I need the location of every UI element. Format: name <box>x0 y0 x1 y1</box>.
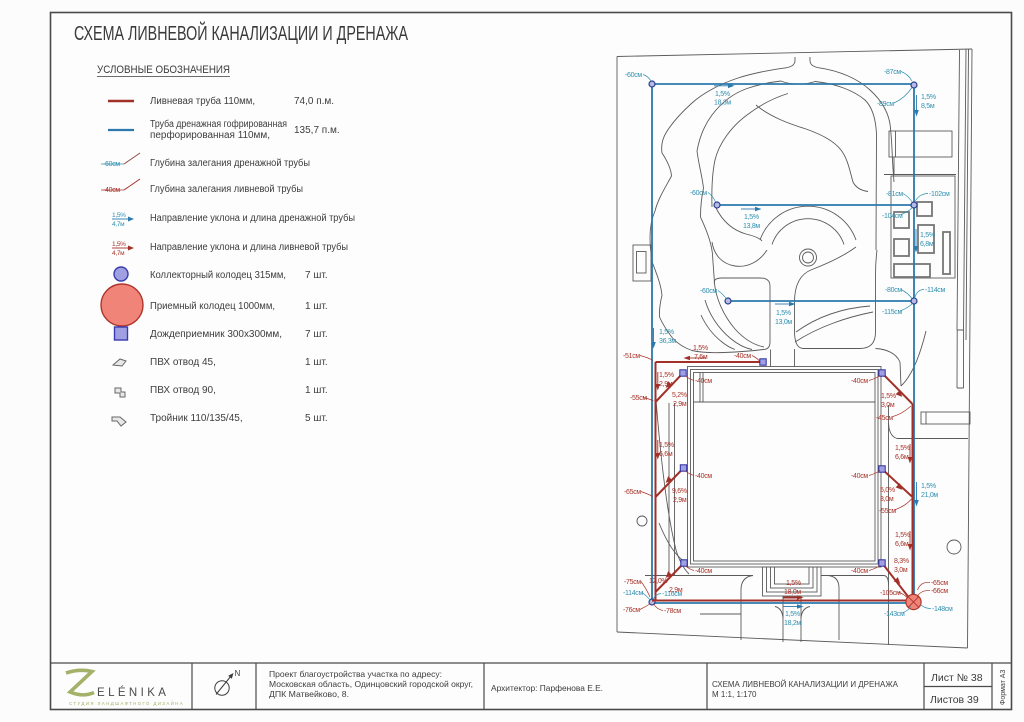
svg-text:2,9м: 2,9м <box>673 497 687 504</box>
svg-text:1,5%: 1,5% <box>659 442 674 449</box>
svg-text:-60см: -60см <box>103 161 120 168</box>
svg-text:1 шт.: 1 шт. <box>305 301 328 312</box>
svg-text:-80см: -80см <box>885 287 902 294</box>
svg-text:Лист № 38: Лист № 38 <box>931 672 983 684</box>
svg-text:13,0м: 13,0м <box>775 319 792 326</box>
svg-text:6,6м: 6,6м <box>895 541 909 548</box>
svg-text:-66см: -66см <box>931 588 948 595</box>
svg-text:перфорированная 110мм,: перфорированная 110мм, <box>150 129 270 141</box>
svg-text:-76см: -76см <box>623 607 640 614</box>
svg-text:-60см: -60см <box>690 190 707 197</box>
svg-text:Проект благоустройства участка: Проект благоустройства участка по адресу… <box>269 669 442 679</box>
svg-text:ДПК Матвейково, 8.: ДПК Матвейково, 8. <box>269 689 349 699</box>
svg-text:1,5%: 1,5% <box>921 94 936 101</box>
svg-text:СХЕМА ЛИВНЕВОЙ КАНАЛИЗАЦИИ И Д: СХЕМА ЛИВНЕВОЙ КАНАЛИЗАЦИИ И ДРЕНАЖА <box>74 21 408 45</box>
svg-text:1,5%: 1,5% <box>659 372 674 379</box>
svg-text:12,0%: 12,0% <box>649 578 667 585</box>
svg-text:СХЕМА ЛИВНЕВОЙ КАНАЛИЗАЦИИ И Д: СХЕМА ЛИВНЕВОЙ КАНАЛИЗАЦИИ И ДРЕНАЖА <box>712 680 899 689</box>
svg-text:УСЛОВНЫЕ ОБОЗНАЧЕНИЯ: УСЛОВНЫЕ ОБОЗНАЧЕНИЯ <box>97 64 230 76</box>
svg-text:6,6м: 6,6м <box>659 451 673 458</box>
svg-text:1,5%: 1,5% <box>785 611 800 618</box>
svg-text:-102см: -102см <box>929 191 950 198</box>
svg-text:1,5%: 1,5% <box>895 445 910 452</box>
svg-text:Глубина залегания ливневой тру: Глубина залегания ливневой трубы <box>150 183 303 195</box>
svg-text:1,5%: 1,5% <box>715 91 730 98</box>
svg-text:Коллекторный колодец 315мм,: Коллекторный колодец 315мм, <box>150 270 286 281</box>
svg-text:2,9м: 2,9м <box>669 587 683 594</box>
svg-text:-65см: -65см <box>624 489 641 496</box>
svg-text:1 шт.: 1 шт. <box>305 357 328 368</box>
svg-text:18,3м: 18,3м <box>714 100 731 107</box>
svg-text:Направление уклона и длина лив: Направление уклона и длина ливневой труб… <box>150 241 348 253</box>
svg-text:-148см: -148см <box>932 606 953 613</box>
svg-text:2,9м: 2,9м <box>659 381 673 388</box>
svg-text:5 шт.: 5 шт. <box>305 413 328 424</box>
svg-text:6,6м: 6,6м <box>895 454 909 461</box>
svg-text:Глубина залегания дренажной тр: Глубина залегания дренажной трубы <box>150 157 310 169</box>
svg-text:3,0м: 3,0м <box>894 567 908 574</box>
svg-text:N: N <box>235 669 241 678</box>
svg-text:-75см: -75см <box>624 579 641 586</box>
svg-text:8,3%: 8,3% <box>894 558 909 565</box>
svg-text:1,5%: 1,5% <box>895 532 910 539</box>
svg-text:5,0%: 5,0% <box>880 487 895 494</box>
svg-text:-55см: -55см <box>879 508 896 515</box>
svg-text:Дождеприемник 300х300мм,: Дождеприемник 300х300мм, <box>150 329 282 340</box>
svg-text:4,7м: 4,7м <box>112 250 125 257</box>
svg-text:-40см: -40см <box>851 568 868 575</box>
svg-text:18,0м: 18,0м <box>784 589 801 596</box>
svg-text:Архитектор: Парфенова Е.Е.: Архитектор: Парфенова Е.Е. <box>491 683 603 693</box>
svg-text:-55см: -55см <box>630 395 647 402</box>
svg-text:-60см: -60см <box>700 288 717 295</box>
svg-text:-60см: -60см <box>625 72 642 79</box>
svg-text:-87см: -87см <box>884 69 901 76</box>
svg-text:-40см: -40см <box>851 473 868 480</box>
svg-text:6,8м: 6,8м <box>920 241 934 248</box>
svg-text:-81см: -81см <box>886 191 903 198</box>
svg-text:-40см: -40см <box>734 353 751 360</box>
svg-text:-143см: -143см <box>884 611 905 618</box>
svg-text:1,5%: 1,5% <box>744 214 759 221</box>
svg-text:1 шт.: 1 шт. <box>305 385 328 396</box>
svg-text:Труба дренажная гофрированная: Труба дренажная гофрированная <box>150 118 287 130</box>
svg-text:135,7 п.м.: 135,7 п.м. <box>294 125 340 136</box>
svg-text:1,5%: 1,5% <box>693 345 708 352</box>
svg-text:13,8м: 13,8м <box>743 223 760 230</box>
svg-text:-89см: -89см <box>877 101 894 108</box>
svg-text:-105см: -105см <box>880 590 901 597</box>
svg-text:-115см: -115см <box>882 309 902 316</box>
svg-text:ELÉNIKA: ELÉNIKA <box>97 686 169 699</box>
svg-text:-114см: -114см <box>925 287 945 294</box>
svg-text:-114см: -114см <box>623 590 643 597</box>
svg-text:СТУДИЯ ЛАНДШАФТНОГО ДИЗАЙНА: СТУДИЯ ЛАНДШАФТНОГО ДИЗАЙНА <box>69 701 184 706</box>
svg-text:7,6м: 7,6м <box>694 354 708 361</box>
svg-text:Формат А3: Формат А3 <box>1000 670 1007 705</box>
svg-text:1,5%: 1,5% <box>112 241 126 248</box>
svg-text:1,5%: 1,5% <box>112 212 126 219</box>
svg-text:1,5%: 1,5% <box>786 580 801 587</box>
svg-text:18,2м: 18,2м <box>784 620 801 627</box>
svg-text:-40см: -40см <box>695 568 712 575</box>
svg-text:1,5%: 1,5% <box>659 329 674 336</box>
svg-text:9,6%: 9,6% <box>672 488 687 495</box>
svg-text:Приемный колодец 1000мм,: Приемный колодец 1000мм, <box>150 301 275 312</box>
svg-text:8,5м: 8,5м <box>921 103 935 110</box>
svg-text:1,5%: 1,5% <box>776 310 791 317</box>
svg-text:-40см: -40см <box>695 378 712 385</box>
svg-text:Направление уклона и длина дре: Направление уклона и длина дренажной тру… <box>150 212 355 224</box>
svg-text:-104см: -104см <box>882 213 903 220</box>
svg-text:ПВХ отвод 90,: ПВХ отвод 90, <box>150 385 216 396</box>
svg-text:7 шт.: 7 шт. <box>305 329 328 340</box>
svg-text:36,3м: 36,3м <box>659 338 676 345</box>
svg-text:Листов 39: Листов 39 <box>930 694 979 706</box>
svg-text:Тройник 110/135/45,: Тройник 110/135/45, <box>150 413 243 424</box>
svg-text:-40см: -40см <box>695 473 712 480</box>
svg-text:-78см: -78см <box>664 608 681 615</box>
svg-text:3,0м: 3,0м <box>881 402 895 409</box>
svg-text:ПВХ отвод 45,: ПВХ отвод 45, <box>150 357 216 368</box>
svg-text:-65см: -65см <box>931 580 948 587</box>
svg-text:-40см: -40см <box>103 187 120 194</box>
svg-text:74,0 п.м.: 74,0 п.м. <box>294 96 334 107</box>
svg-text:-40см: -40см <box>851 378 868 385</box>
svg-text:1,5%: 1,5% <box>881 393 896 400</box>
svg-text:4,7м: 4,7м <box>112 221 125 228</box>
svg-text:Московская область, Одинцовски: Московская область, Одинцовский городско… <box>269 679 473 689</box>
svg-text:-45см: -45см <box>876 415 893 422</box>
svg-text:3,0м: 3,0м <box>880 496 894 503</box>
svg-text:1,5%: 1,5% <box>920 232 935 239</box>
svg-text:7 шт.: 7 шт. <box>305 270 328 281</box>
svg-text:5,2%: 5,2% <box>672 392 687 399</box>
svg-text:1,5%: 1,5% <box>921 483 936 490</box>
svg-text:Ливневая труба 110мм,: Ливневая труба 110мм, <box>150 95 255 107</box>
svg-text:-51см: -51см <box>623 353 640 360</box>
svg-text:2,9м: 2,9м <box>673 401 687 408</box>
svg-text:21,0м: 21,0м <box>921 492 938 499</box>
svg-text:М 1:1, 1:170: М 1:1, 1:170 <box>712 690 757 699</box>
